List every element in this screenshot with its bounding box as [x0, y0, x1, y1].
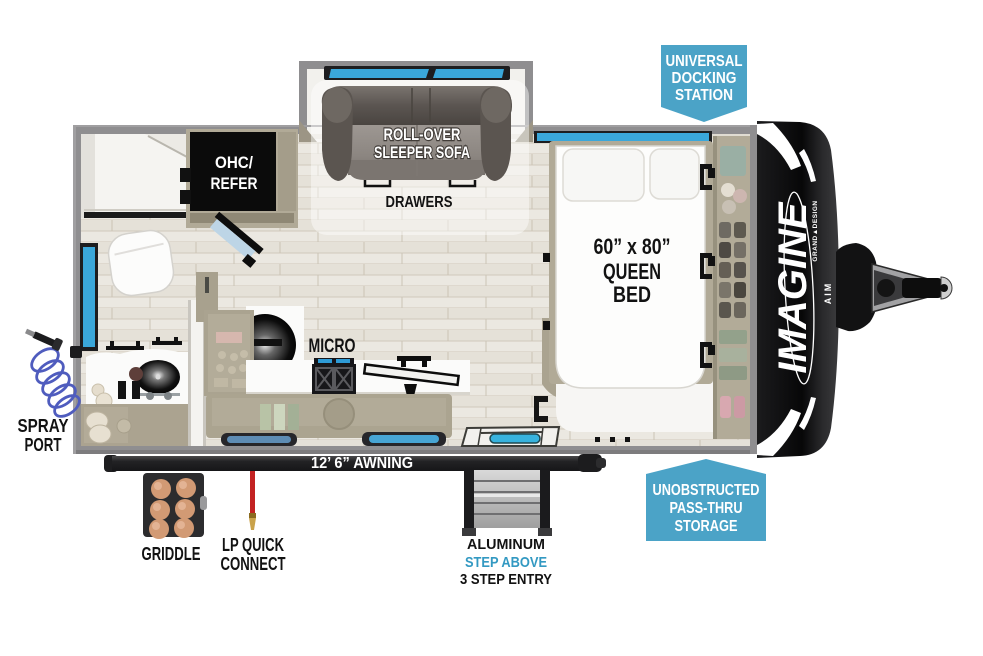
- svg-text:ROLL-OVER: ROLL-OVER: [384, 125, 461, 144]
- svg-text:DOCKING: DOCKING: [672, 70, 737, 87]
- svg-text:DRAWERS: DRAWERS: [386, 194, 453, 211]
- svg-text:BED: BED: [613, 282, 651, 307]
- svg-text:3 STEP ENTRY: 3 STEP ENTRY: [460, 571, 552, 588]
- svg-text:GRIDDLE: GRIDDLE: [142, 544, 201, 564]
- svg-text:STATION: STATION: [675, 87, 733, 104]
- svg-text:GRAND▲DESIGN: GRAND▲DESIGN: [812, 200, 819, 261]
- svg-text:SPRAY: SPRAY: [18, 416, 69, 436]
- svg-text:PASS-THRU: PASS-THRU: [670, 500, 743, 517]
- svg-text:12’ 6” AWNING: 12’ 6” AWNING: [311, 455, 413, 472]
- svg-text:IMAGINE: IMAGINE: [771, 201, 815, 373]
- svg-text:QUEEN: QUEEN: [603, 259, 661, 284]
- svg-text:REFER: REFER: [211, 174, 258, 193]
- svg-text:UNOBSTRUCTED: UNOBSTRUCTED: [653, 482, 760, 499]
- svg-text:ALUMINUM: ALUMINUM: [467, 536, 545, 553]
- svg-text:CONNECT: CONNECT: [221, 554, 286, 574]
- svg-text:SLEEPER SOFA: SLEEPER SOFA: [374, 143, 470, 162]
- svg-text:PORT: PORT: [25, 435, 62, 455]
- svg-text:AIM: AIM: [823, 282, 833, 305]
- svg-text:OHC/: OHC/: [215, 153, 253, 172]
- svg-text:MICRO: MICRO: [309, 336, 356, 357]
- svg-text:60” x 80”: 60” x 80”: [594, 234, 671, 259]
- svg-text:STORAGE: STORAGE: [675, 518, 738, 535]
- svg-text:LP QUICK: LP QUICK: [222, 535, 284, 555]
- svg-text:UNIVERSAL: UNIVERSAL: [666, 53, 743, 70]
- svg-text:STEP ABOVE: STEP ABOVE: [465, 554, 547, 571]
